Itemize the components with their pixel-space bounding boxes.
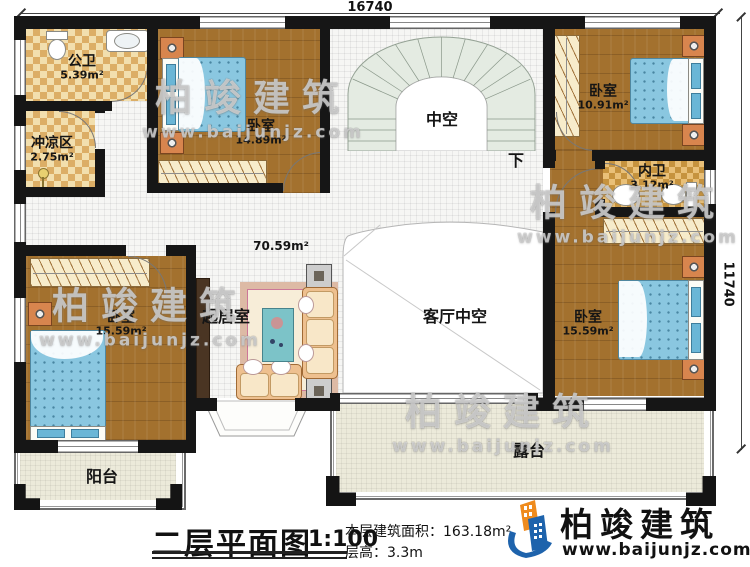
wall (592, 150, 716, 161)
staircase (340, 29, 543, 151)
wall (543, 161, 555, 168)
dimension-label-right: 11740 (721, 262, 736, 306)
dimension-label-top: 16740 (340, 0, 400, 15)
wall (543, 16, 555, 161)
wall (95, 149, 105, 197)
window (585, 16, 680, 29)
coffee-table (262, 308, 294, 362)
room-label-qijushi: 起居室 (202, 308, 250, 326)
wall (595, 161, 605, 169)
room-label-bedroom-right: 卧室 15.59m² (562, 310, 613, 339)
wall (20, 245, 126, 256)
room-label-yangtai: 阳台 (86, 468, 118, 486)
nightstand (160, 37, 184, 59)
sink-basin (114, 33, 140, 49)
wall (320, 16, 330, 193)
wall (147, 16, 158, 193)
brand-site: www.baijunjz.com (562, 540, 750, 560)
wall (20, 187, 95, 197)
window (390, 16, 490, 29)
sliding-door (58, 440, 138, 453)
room-label-bedroom-tr: 卧室 10.91m² (577, 84, 628, 113)
wall (330, 393, 340, 411)
bed (30, 330, 106, 428)
wall (186, 245, 196, 453)
room-label-bedroom-left: 卧室 15.59m² (95, 310, 146, 339)
nightstand (682, 124, 706, 146)
brand-logo-icon (500, 497, 558, 561)
wall (95, 101, 105, 113)
wardrobe (158, 160, 267, 185)
wardrobe (603, 218, 706, 244)
floor-height-text: 层高：3.3m (345, 542, 423, 562)
nightstand (682, 35, 706, 57)
wall (528, 393, 538, 411)
nightstand (160, 132, 184, 154)
neiwei-toilet-tank (686, 182, 697, 207)
bed-headboard (688, 58, 704, 124)
dimension-line-right (741, 16, 742, 450)
hall-area-label: 70.59m² (253, 240, 309, 254)
floor-plan: 公卫 5.39m² 冲凉区 2.75m² 卧室 14.89m² 中空 下 卧室 … (0, 0, 750, 567)
bed-headboard (688, 280, 704, 360)
bed (618, 280, 690, 360)
sofa-bottom (236, 364, 302, 400)
window (200, 16, 285, 29)
bed-headboard (162, 58, 179, 131)
window (584, 398, 646, 411)
wall (704, 16, 716, 411)
bed (630, 58, 690, 124)
title-underline-2 (152, 557, 347, 559)
title-underline (152, 551, 347, 554)
nightstand (682, 358, 706, 380)
floor-area-text: 本层建筑面积：163.18m² (345, 521, 511, 541)
window (14, 126, 26, 170)
nightstand (28, 302, 52, 326)
room-label-zhongkong: 中空 (426, 111, 458, 129)
wall (147, 183, 283, 193)
end-table (306, 264, 332, 288)
window (14, 40, 26, 95)
sliding-door (340, 393, 528, 404)
stair-down-label: 下 (508, 152, 524, 170)
bed-headboard (30, 426, 106, 441)
room-label-lutai: 露台 (513, 442, 545, 460)
tv-cabinet (196, 278, 210, 400)
wall (595, 199, 605, 207)
room-label-bedroom-top: 卧室 14.89m² (235, 119, 286, 148)
window (14, 204, 26, 242)
living-void-outline (340, 208, 546, 398)
wall (595, 207, 716, 217)
room-label-chongliangqu: 冲凉区 2.75m² (30, 136, 73, 165)
room-label-keting-void: 客厅中空 (423, 308, 487, 326)
wall (543, 212, 555, 398)
nightstand (682, 256, 706, 278)
window (704, 170, 716, 204)
room-label-neiwei: 内卫 3.12m² (630, 164, 673, 193)
shower-drain (38, 168, 49, 179)
room-label-gongwei: 公卫 5.39m² (60, 54, 103, 83)
window (14, 298, 26, 362)
sofa-right (302, 287, 338, 379)
brand-name: 柏竣建筑 (560, 498, 720, 546)
